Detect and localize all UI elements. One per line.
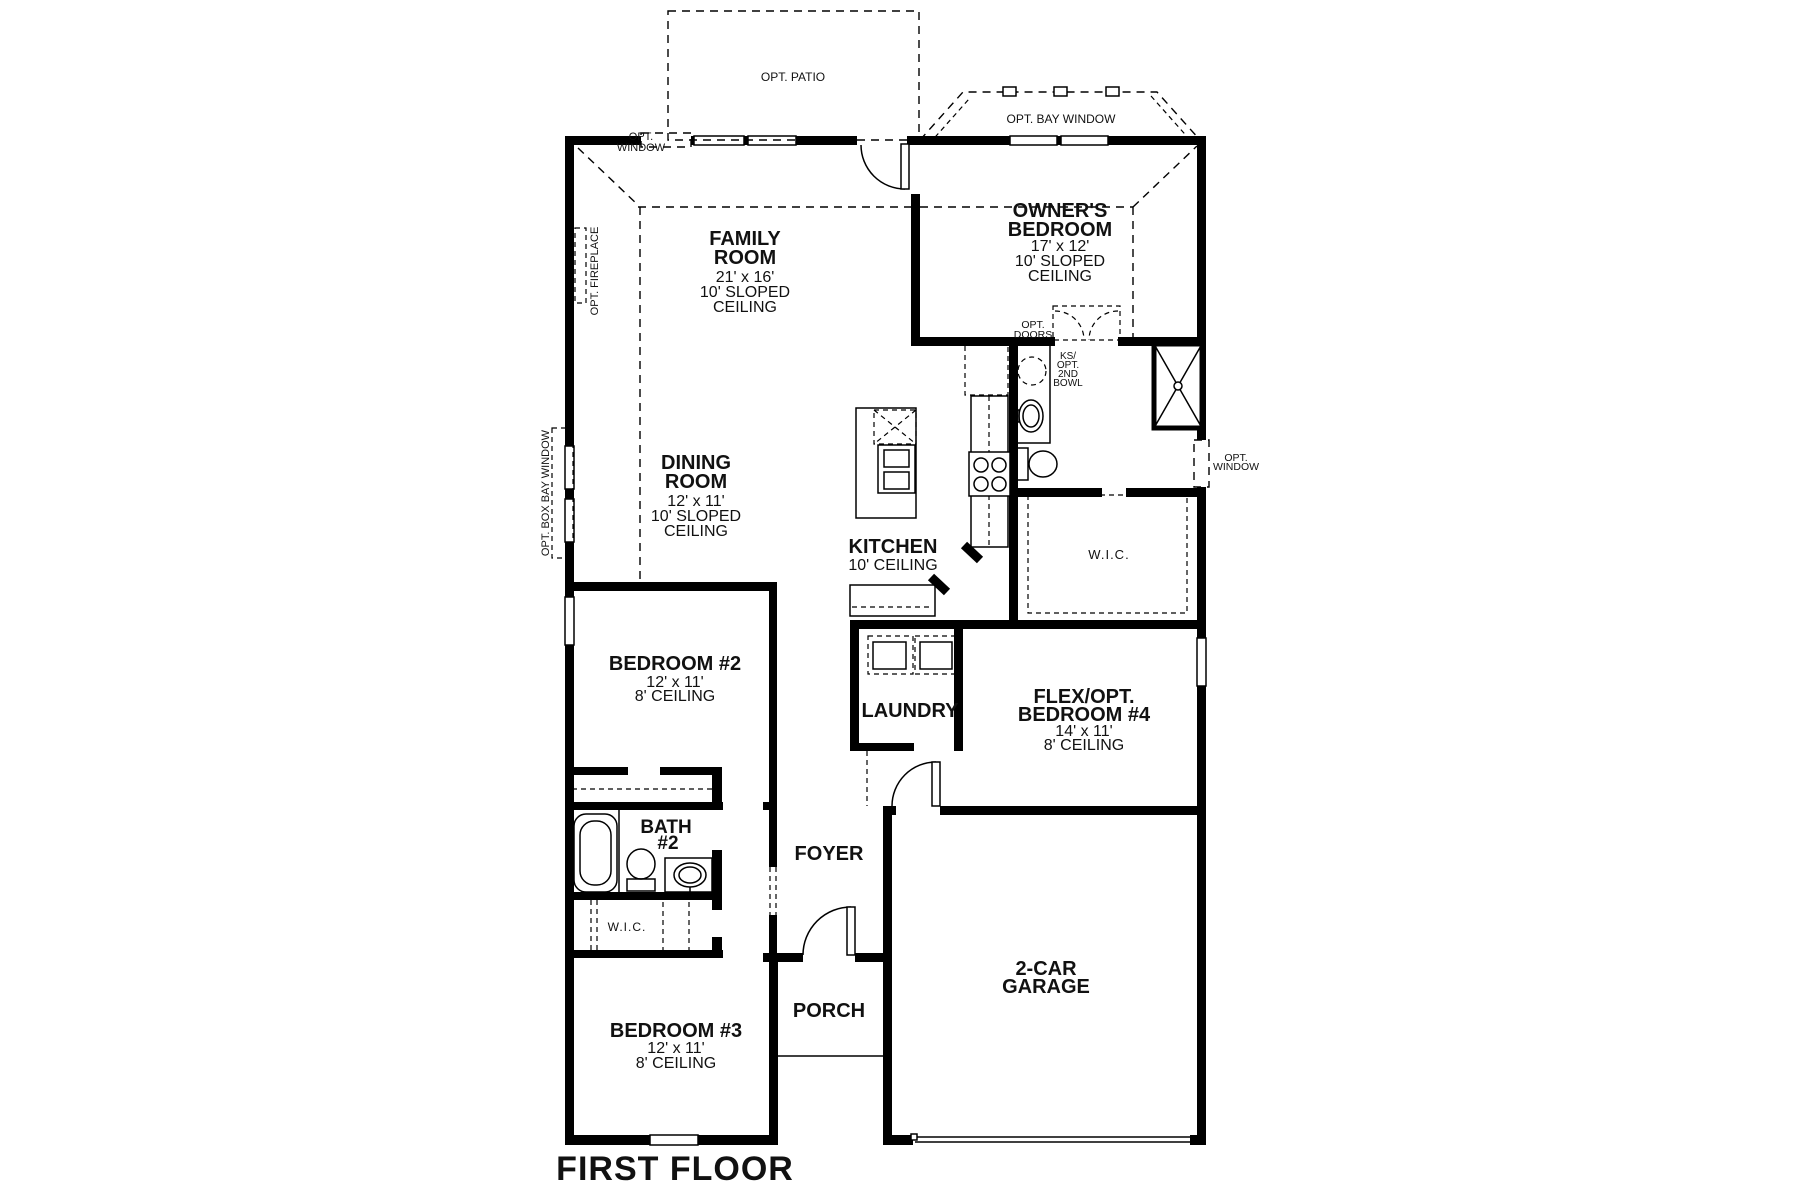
garage-name2: GARAGE: [1002, 976, 1090, 998]
bath2-name2: #2: [657, 833, 678, 854]
floor-plan-drawing: FAMILY ROOM 21' x 16' 10' SLOPED CEILING…: [0, 0, 1800, 1200]
owners-bath-fixtures: [1014, 342, 1202, 613]
owners-wic-label: W.I.C.: [1088, 547, 1129, 562]
window-bedroom2: [565, 597, 574, 645]
optional-double-doors: [1053, 306, 1120, 340]
owners-shower: [1154, 344, 1202, 428]
front-door-leaf: [847, 907, 855, 955]
bedroom2-ceiling: 8' CEILING: [635, 688, 715, 705]
kitchen-fixtures: [850, 345, 1010, 616]
bedroom3-ceiling: 8' CEILING: [636, 1055, 716, 1072]
optional-features: [552, 11, 1200, 558]
optional-second-bowl: [1018, 357, 1046, 385]
foyer-name: FOYER: [795, 843, 864, 865]
bedroom3-wic-label: W.I.C.: [608, 920, 647, 934]
kitchen-name: KITCHEN: [849, 536, 938, 558]
exterior-walls: [565, 136, 1206, 1145]
opt-bay-window-label: OPT. BAY WINDOW: [1007, 112, 1117, 126]
opt-box-bay-window-label: OPT. BOX BAY WINDOW: [540, 429, 552, 556]
bedroom2-name: BEDROOM #2: [609, 653, 741, 675]
porch-name: PORCH: [793, 1000, 865, 1022]
window-owners-2: [1061, 136, 1108, 145]
ks-opt-2nd-bowl-label4: BOWL: [1053, 378, 1083, 389]
opt-fireplace-label: OPT. FIREPLACE: [589, 227, 601, 316]
bedroom3-name: BEDROOM #3: [610, 1020, 742, 1042]
laundry-name: LAUNDRY: [861, 700, 959, 722]
plan-title: FIRST FLOOR: [556, 1150, 794, 1188]
kitchen-island: [856, 408, 916, 518]
window-owners-1: [1010, 136, 1057, 145]
owners-toilet: [1029, 451, 1057, 477]
family-room-name2: ROOM: [714, 247, 776, 269]
dining-room-name2: ROOM: [665, 471, 727, 493]
optional-window-right: [1194, 440, 1209, 487]
laundry-fixtures: [868, 636, 957, 674]
opt-window-top-label2: WINDOW: [617, 142, 666, 154]
owners-bedroom-ceiling2: CEILING: [1028, 268, 1092, 285]
bath2-toilet: [627, 849, 655, 879]
window-flex-bedroom: [1197, 638, 1206, 686]
kitchen-lower-counter: [850, 585, 935, 616]
family-room-ceiling2: CEILING: [713, 299, 777, 316]
kitchen-ceiling: 10' CEILING: [848, 557, 937, 574]
doors: [803, 144, 1190, 1142]
dining-room-ceiling2: CEILING: [664, 523, 728, 540]
opt-patio-label: OPT. PATIO: [761, 70, 825, 84]
opt-doors-label2: DOORS: [1014, 329, 1053, 341]
garage-entry-door-swing: [892, 762, 936, 806]
opt-window-right-label2: WINDOW: [1213, 461, 1259, 473]
garage-entry-door-leaf: [932, 762, 940, 806]
back-door-swing: [861, 145, 905, 189]
optional-fireplace-outline: [575, 228, 586, 303]
front-door-swing: [803, 907, 851, 955]
flex-bedroom-ceiling: 8' CEILING: [1044, 737, 1124, 754]
window-bedroom3: [650, 1135, 698, 1145]
floor-plan-page: FAMILY ROOM 21' x 16' 10' SLOPED CEILING…: [0, 0, 1800, 1200]
back-door-leaf: [901, 144, 909, 189]
